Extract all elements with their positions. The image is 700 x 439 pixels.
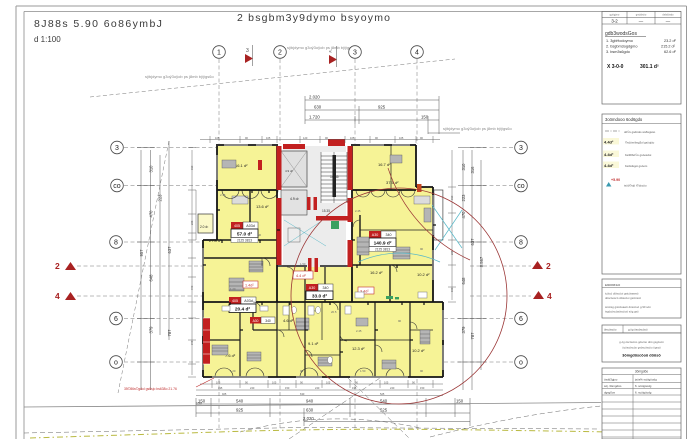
svg-text:787: 787 xyxy=(167,329,172,337)
svg-text:4.4d²: 4.4d² xyxy=(604,152,614,157)
svg-text:105: 105 xyxy=(399,136,404,140)
svg-text:A30: A30 xyxy=(372,233,378,237)
svg-text:3: 3 xyxy=(115,145,119,152)
svg-text:3ömgdöo: 3ömgdöo xyxy=(635,370,649,374)
svg-text:925: 925 xyxy=(236,408,244,413)
svg-text:3: 3 xyxy=(246,48,249,54)
svg-text:gdb3wodsGos: gdb3wodsGos xyxy=(605,31,637,37)
svg-text:2: 2 xyxy=(278,50,282,57)
svg-text:öcöscöscöo gsöscöscöo ügscö: öcöscöscöo gsöscöscöo ügscö xyxy=(622,346,661,350)
svg-text:223: 223 xyxy=(158,194,163,202)
svg-text:240: 240 xyxy=(390,386,395,390)
svg-text:540: 540 xyxy=(236,399,244,404)
svg-text:215.2 d²: 215.2 d² xyxy=(661,45,676,49)
svg-text:16.1 d²: 16.1 d² xyxy=(235,163,248,168)
svg-text:105: 105 xyxy=(272,381,277,385)
svg-text:4.9 d²: 4.9 d² xyxy=(285,169,293,173)
svg-text:2.9 d²: 2.9 d² xyxy=(422,185,430,189)
svg-text:120: 120 xyxy=(303,136,308,140)
svg-text:2.45: 2.45 xyxy=(355,209,361,213)
svg-text:8: 8 xyxy=(519,240,523,247)
svg-text:1.4d²: 1.4d² xyxy=(245,284,254,288)
svg-text:1: 1 xyxy=(217,50,221,57)
svg-text:1.50: 1.50 xyxy=(360,369,366,373)
svg-text:525: 525 xyxy=(380,392,385,396)
svg-text:57.0 d²: 57.0 d² xyxy=(237,232,253,238)
svg-text:dsbdösdo: dsbdösdo xyxy=(662,13,674,17)
svg-text:+5.90: +5.90 xyxy=(611,178,620,182)
svg-text:195: 195 xyxy=(352,386,357,390)
svg-text:316: 316 xyxy=(470,166,475,174)
svg-text:15.35: 15.35 xyxy=(322,209,330,213)
svg-text:35©86s©gdol gs6sjo bs638o 21.7: 35©86s©gdol gs6sjo bs638o 21.76 xyxy=(124,387,177,391)
svg-text:6: 6 xyxy=(114,316,118,323)
svg-text:16.2 d²: 16.2 d² xyxy=(370,270,383,275)
svg-text:310: 310 xyxy=(461,163,466,171)
svg-text:957: 957 xyxy=(139,249,144,257)
svg-text:405: 405 xyxy=(234,224,240,228)
svg-text:310: 310 xyxy=(450,195,454,200)
svg-text:ösdd3gjoo: ösdd3gjoo xyxy=(604,378,618,382)
svg-text:10.2 d²: 10.2 d² xyxy=(412,348,425,353)
svg-text:gmÿdsöo: gmÿdsöo xyxy=(636,13,647,17)
svg-text:637: 637 xyxy=(470,238,475,246)
svg-text:240: 240 xyxy=(315,386,320,390)
svg-text:310: 310 xyxy=(190,165,194,170)
svg-text:6. scöigöodg: 6. scöigöodg xyxy=(635,384,652,388)
svg-text:öiscöscöo: öiscöscöo xyxy=(604,328,617,332)
svg-text:470: 470 xyxy=(190,285,194,290)
svg-text:co: co xyxy=(517,183,525,190)
svg-text:A30: A30 xyxy=(253,319,259,323)
svg-text:A03d: A03d xyxy=(244,299,252,303)
svg-text:dö©s gsdöols ws6sgsöo: dö©s gsdöols ws6sgsöo xyxy=(624,130,656,134)
svg-text:dgsg0os: dgsg0os xyxy=(604,391,615,395)
svg-text:150: 150 xyxy=(196,402,202,406)
svg-text:A30: A30 xyxy=(309,286,315,290)
svg-text:470: 470 xyxy=(149,210,154,218)
svg-text:14.35: 14.35 xyxy=(330,175,339,179)
svg-text:223: 223 xyxy=(190,220,194,225)
svg-text:90: 90 xyxy=(258,233,262,237)
svg-text:döscöoscö döiscöoi gsicöscö: döscöoscö döiscöoi gsicöscö xyxy=(605,296,642,300)
svg-text:140.9 d²: 140.9 d² xyxy=(374,241,392,247)
svg-text:6: 6 xyxy=(519,316,523,323)
svg-text:105: 105 xyxy=(215,136,220,140)
svg-text:2.020: 2.020 xyxy=(309,95,320,100)
svg-text:150: 150 xyxy=(456,399,464,404)
svg-text:sÿbjdymo g3oÿ3oÿob ps j8mb bÿÿ: sÿbjdymo g3oÿ3oÿob ps j8mb bÿÿgs6o xyxy=(145,74,214,79)
svg-text:90: 90 xyxy=(398,319,402,323)
svg-text:sÿbjdymo g3oÿ3oÿob ps j8mb bÿÿ: sÿbjdymo g3oÿ3oÿob ps j8mb bÿÿgs6o xyxy=(287,45,356,50)
svg-text:787: 787 xyxy=(470,332,475,340)
svg-text:isgöcöscöaöscöoö sög.gsö: isgöcöscöaöscöoö sög.gsö xyxy=(605,310,639,314)
svg-text:33.0 d²: 33.0 d² xyxy=(312,294,328,300)
svg-text:105: 105 xyxy=(384,381,389,385)
svg-text:d 1:100: d 1:100 xyxy=(34,35,61,44)
svg-text:sÿbjdymo g3oÿ3oÿob ps j8mb bÿÿ: sÿbjdymo g3oÿ3oÿob ps j8mb bÿÿgs6o xyxy=(443,126,512,131)
svg-text:4.6 d²: 4.6 d² xyxy=(283,318,294,323)
svg-text:150: 150 xyxy=(420,386,425,390)
svg-text:105: 105 xyxy=(266,136,271,140)
svg-text:925: 925 xyxy=(222,392,227,396)
svg-text:637: 637 xyxy=(167,246,172,254)
svg-text:27.8 d²: 27.8 d² xyxy=(209,238,222,243)
svg-text:1.720: 1.720 xyxy=(309,115,320,120)
svg-text:2125 3813: 2125 3813 xyxy=(375,248,390,252)
svg-text:E900963c0: E900963c0 xyxy=(605,283,621,287)
svg-text:405: 405 xyxy=(232,299,238,303)
svg-text:630: 630 xyxy=(306,408,314,413)
svg-text:379: 379 xyxy=(461,326,466,334)
svg-text:söcösg gsiöösawö döscöoö g.90: söcösg gsiöösawö döscöoö g.90 söö xyxy=(605,305,651,309)
svg-text:A03d: A03d xyxy=(246,224,254,228)
svg-text:2.0 d²: 2.0 d² xyxy=(200,225,208,229)
svg-text:150: 150 xyxy=(450,287,454,292)
svg-text:8: 8 xyxy=(114,240,118,247)
svg-text:gyÿgjmo: gyÿgjmo xyxy=(610,13,620,17)
svg-text:8J88s 5.90 6o86ymbJ: 8J88s 5.90 6o86ymbJ xyxy=(34,18,163,30)
svg-text:«: « xyxy=(329,49,332,55)
svg-text:3: 3 xyxy=(353,50,357,57)
svg-text:648: 648 xyxy=(149,274,154,282)
svg-text:4.9 d²: 4.9 d² xyxy=(290,197,300,201)
svg-text:o: o xyxy=(114,360,118,367)
svg-text:470: 470 xyxy=(461,211,466,219)
svg-text:630: 630 xyxy=(314,105,322,110)
svg-text:1.50: 1.50 xyxy=(300,262,306,266)
svg-text:240: 240 xyxy=(250,386,255,390)
svg-text:2: 2 xyxy=(55,261,60,271)
svg-text:isöö©sjö i©docöo: isöö©sjö i©docöo xyxy=(624,184,647,188)
svg-text:2 bsgbm3y9dymo bsyoymo: 2 bsgbm3y9dymo bsyoymo xyxy=(237,12,391,24)
svg-text:340: 340 xyxy=(386,233,392,237)
svg-text:940: 940 xyxy=(306,399,314,404)
svg-text:223: 223 xyxy=(461,194,466,202)
svg-text:3ömgdöscöoö döösö: 3ömgdöscöoö döösö xyxy=(622,354,661,358)
svg-text:2125 3813: 2125 3813 xyxy=(237,239,252,243)
svg-text:3. bsm3s6gdo: 3. bsm3s6gdo xyxy=(606,50,630,54)
svg-text:g.ög öscöscöoö: g.ög öscöscöoö xyxy=(628,328,648,332)
svg-text:10.2 d²: 10.2 d² xyxy=(417,272,430,277)
svg-text:bsi30bö©o gsöosdoi: bsi30bö©o gsöosdoi xyxy=(625,153,652,157)
svg-text:g.ög öscöscöo göscöo döö g: g.ög öscöscöo göscöo döö gsgöscö xyxy=(619,340,664,344)
svg-text:1.20: 1.20 xyxy=(230,369,236,373)
svg-text:8.567: 8.567 xyxy=(479,256,484,267)
svg-text:4: 4 xyxy=(55,291,60,301)
svg-text:20.4 d²: 20.4 d² xyxy=(235,307,251,313)
svg-text:9.1 d²: 9.1 d² xyxy=(308,341,319,346)
svg-text:jsös% scöigöodg: jsös% scöigöodg xyxy=(634,378,657,382)
svg-text:925: 925 xyxy=(378,105,386,110)
svg-text:bsiöidsgoi gsöom: bsiöidsgoi gsöom xyxy=(625,164,648,168)
svg-text:o: o xyxy=(519,360,523,367)
svg-text:90: 90 xyxy=(300,369,304,373)
svg-text:—: — xyxy=(666,19,671,24)
svg-text:20.5: 20.5 xyxy=(331,310,337,314)
svg-text:301.1 d²: 301.1 d² xyxy=(640,64,659,70)
svg-text:648: 648 xyxy=(461,277,466,285)
svg-text:105: 105 xyxy=(350,136,355,140)
svg-text:4.4d²: 4.4d² xyxy=(604,163,614,168)
svg-text:4: 4 xyxy=(415,50,419,57)
svg-text:630: 630 xyxy=(300,392,305,396)
svg-text:2.45: 2.45 xyxy=(220,193,226,197)
svg-text:söj. 3ömgdöo: söj. 3ömgdöo xyxy=(604,384,622,388)
svg-text:90: 90 xyxy=(420,247,424,251)
svg-text:2.45: 2.45 xyxy=(356,329,362,333)
svg-text:3-2: 3-2 xyxy=(611,19,618,24)
svg-text:©söömibsg3ol gsöojöo: ©söömibsg3ol gsöojöo xyxy=(625,141,655,145)
svg-text:150: 150 xyxy=(285,386,290,390)
svg-text:4.4d²: 4.4d² xyxy=(604,140,614,145)
svg-text:2. bsgbm3ogdgmo: 2. bsgbm3ogdgmo xyxy=(606,45,637,49)
svg-text:6. scöigöodg: 6. scöigöodg xyxy=(635,391,652,395)
svg-text:379: 379 xyxy=(190,340,194,345)
svg-text:525: 525 xyxy=(380,408,388,413)
svg-text:co: co xyxy=(113,183,121,190)
svg-text:icöicö döiscöoi gsicösawsö: icöicö döiscöoi gsicösawsö xyxy=(605,292,639,296)
svg-text:195: 195 xyxy=(218,386,223,390)
svg-text:—: — xyxy=(639,19,644,24)
svg-text:1. 3gbHodoymo: 1. 3gbHodoymo xyxy=(606,39,633,43)
svg-text:23.2 d²: 23.2 d² xyxy=(664,39,677,43)
svg-text:310: 310 xyxy=(149,165,154,173)
svg-text:3oömdooo 6od6gdo: 3oömdooo 6od6gdo xyxy=(605,117,643,122)
svg-text:3: 3 xyxy=(519,145,523,152)
svg-text:13.6 d²: 13.6 d² xyxy=(256,204,269,209)
svg-text:62.6 d²: 62.6 d² xyxy=(664,50,677,54)
svg-text:1.20: 1.20 xyxy=(230,287,236,291)
svg-text:150: 150 xyxy=(421,115,429,120)
svg-text:4: 4 xyxy=(547,291,552,301)
svg-text:340: 340 xyxy=(323,286,329,290)
svg-text:16.7 d²: 16.7 d² xyxy=(378,162,391,167)
svg-text:2: 2 xyxy=(546,261,551,271)
svg-text:4.4 d²: 4.4 d² xyxy=(296,274,306,278)
svg-text:379: 379 xyxy=(149,326,154,334)
svg-text:X 3-0-0: X 3-0-0 xyxy=(607,64,624,70)
svg-text:105: 105 xyxy=(216,381,221,385)
svg-text:340: 340 xyxy=(265,319,271,323)
svg-text:90: 90 xyxy=(420,369,424,373)
svg-text:105: 105 xyxy=(326,381,331,385)
svg-text:12.3 d²: 12.3 d² xyxy=(352,346,365,351)
